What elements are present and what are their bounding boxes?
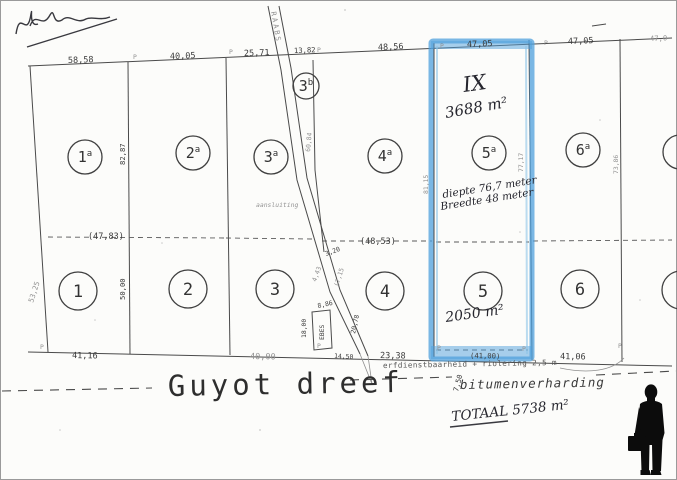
easement-note: erfdienstbaarheid + riolering 2,5 m [383, 358, 557, 370]
measurement-label: 77,17 [517, 153, 525, 172]
parcel-2a-number: 2a [186, 144, 200, 162]
measurement-label: (48,53) [360, 237, 396, 247]
measurement-label: 4,43 [310, 265, 323, 282]
parcel-3a-number: 3a [264, 148, 278, 166]
utility-cabin-label: EBES [318, 324, 326, 340]
boundary-marker-p: P [229, 48, 233, 56]
measurement-label: 60,84 [304, 132, 314, 152]
measurement-label: 25,71 [244, 48, 270, 59]
measurement-label: 82,87 [118, 143, 127, 165]
boundary-marker-p: P [440, 42, 444, 50]
parcel-1a-number: 1a [78, 148, 92, 166]
boundary-marker-p: P [522, 345, 526, 353]
street-name: Guyot dreef [168, 365, 405, 403]
boundary-marker-p: P [544, 39, 548, 47]
parcel-2-number: 2 [183, 280, 193, 300]
measurement-label: 50,00 [118, 278, 127, 300]
boundary-marker-p: P [618, 342, 622, 350]
signature [16, 12, 117, 47]
measurement-label: (47,83) [88, 232, 124, 242]
parcel-6-number: 6 [575, 280, 585, 300]
boundary-marker-p: P [133, 53, 137, 61]
businessman-silhouette-icon [628, 384, 665, 475]
parcel-4-number: 4 [380, 282, 390, 302]
measurement-label: 47,05 [467, 39, 493, 50]
measurement-label: 81,15 [422, 175, 430, 194]
parcel-3-number: 3 [270, 280, 280, 300]
boundary-marker-p: P [317, 342, 321, 350]
parcel-5a-number: 5a [482, 144, 496, 162]
parcel-boundaries [2, 6, 676, 391]
boundary-marker-p: P [437, 344, 441, 352]
parcel-6a-number: 6a [576, 141, 590, 159]
edge-parcel-circle [663, 135, 677, 169]
measurement-label: 40,00 [250, 352, 276, 362]
measurement-label: 53,25 [26, 280, 41, 303]
boundary-marker-p: P [40, 343, 44, 351]
parcel-5-number: 5 [478, 282, 488, 302]
handwritten-annotations: IX 3688 m² diepte 76,7 meter Breedte 48 … [439, 70, 570, 427]
parcel-4a-number: 4a [378, 147, 392, 165]
parcel-1-number: 1 [73, 282, 83, 302]
measurement-label: 8,86 [317, 299, 334, 310]
measurement-labels: 58,5840,0525,7113,8248,5647,0547,0547,04… [26, 11, 667, 393]
measurement-label: 48,56 [378, 42, 404, 53]
parcel-3b-number: 3b [299, 77, 313, 95]
measurement-label: 14,50 [334, 352, 354, 361]
area-lower-note: 2050 m² [443, 302, 505, 326]
parcel-mark: IX [460, 70, 488, 97]
scanned-plan-page: 1a2a3a3b4a5a6a123456 58,5840,0525,7113,8… [0, 0, 677, 480]
measurement-label: 13,82 [294, 45, 316, 55]
connection-note: aansluiting [256, 201, 298, 209]
measurement-label: 3,20 [324, 245, 341, 258]
area-upper-note: 3688 m² [444, 93, 509, 122]
survey-plan: 1a2a3a3b4a5a6a123456 58,5840,0525,7113,8… [0, 0, 677, 480]
measurement-label: 47,0 [650, 33, 668, 43]
measurement-label: 73,86 [612, 155, 620, 174]
street-labels: Guyot dreef bitumenverharding erfdienstb… [168, 358, 605, 403]
measurement-label: 18,00 [300, 319, 308, 338]
measurement-label: 47,05 [568, 36, 594, 47]
measurement-label: 41,06 [560, 352, 586, 362]
measurement-label: 41,16 [72, 351, 98, 361]
total-area-note: TOTAAL 5738 m² [451, 397, 570, 425]
measurement-label: 40,05 [170, 51, 196, 62]
parcel-circles: 1a2a3a3b4a5a6a123456 [59, 73, 677, 310]
measurement-label: 58,58 [68, 55, 94, 66]
surface-note: bitumenverharding [460, 374, 605, 392]
edge-parcel-circle [662, 271, 677, 309]
boundary-marker-p: P [317, 46, 321, 54]
